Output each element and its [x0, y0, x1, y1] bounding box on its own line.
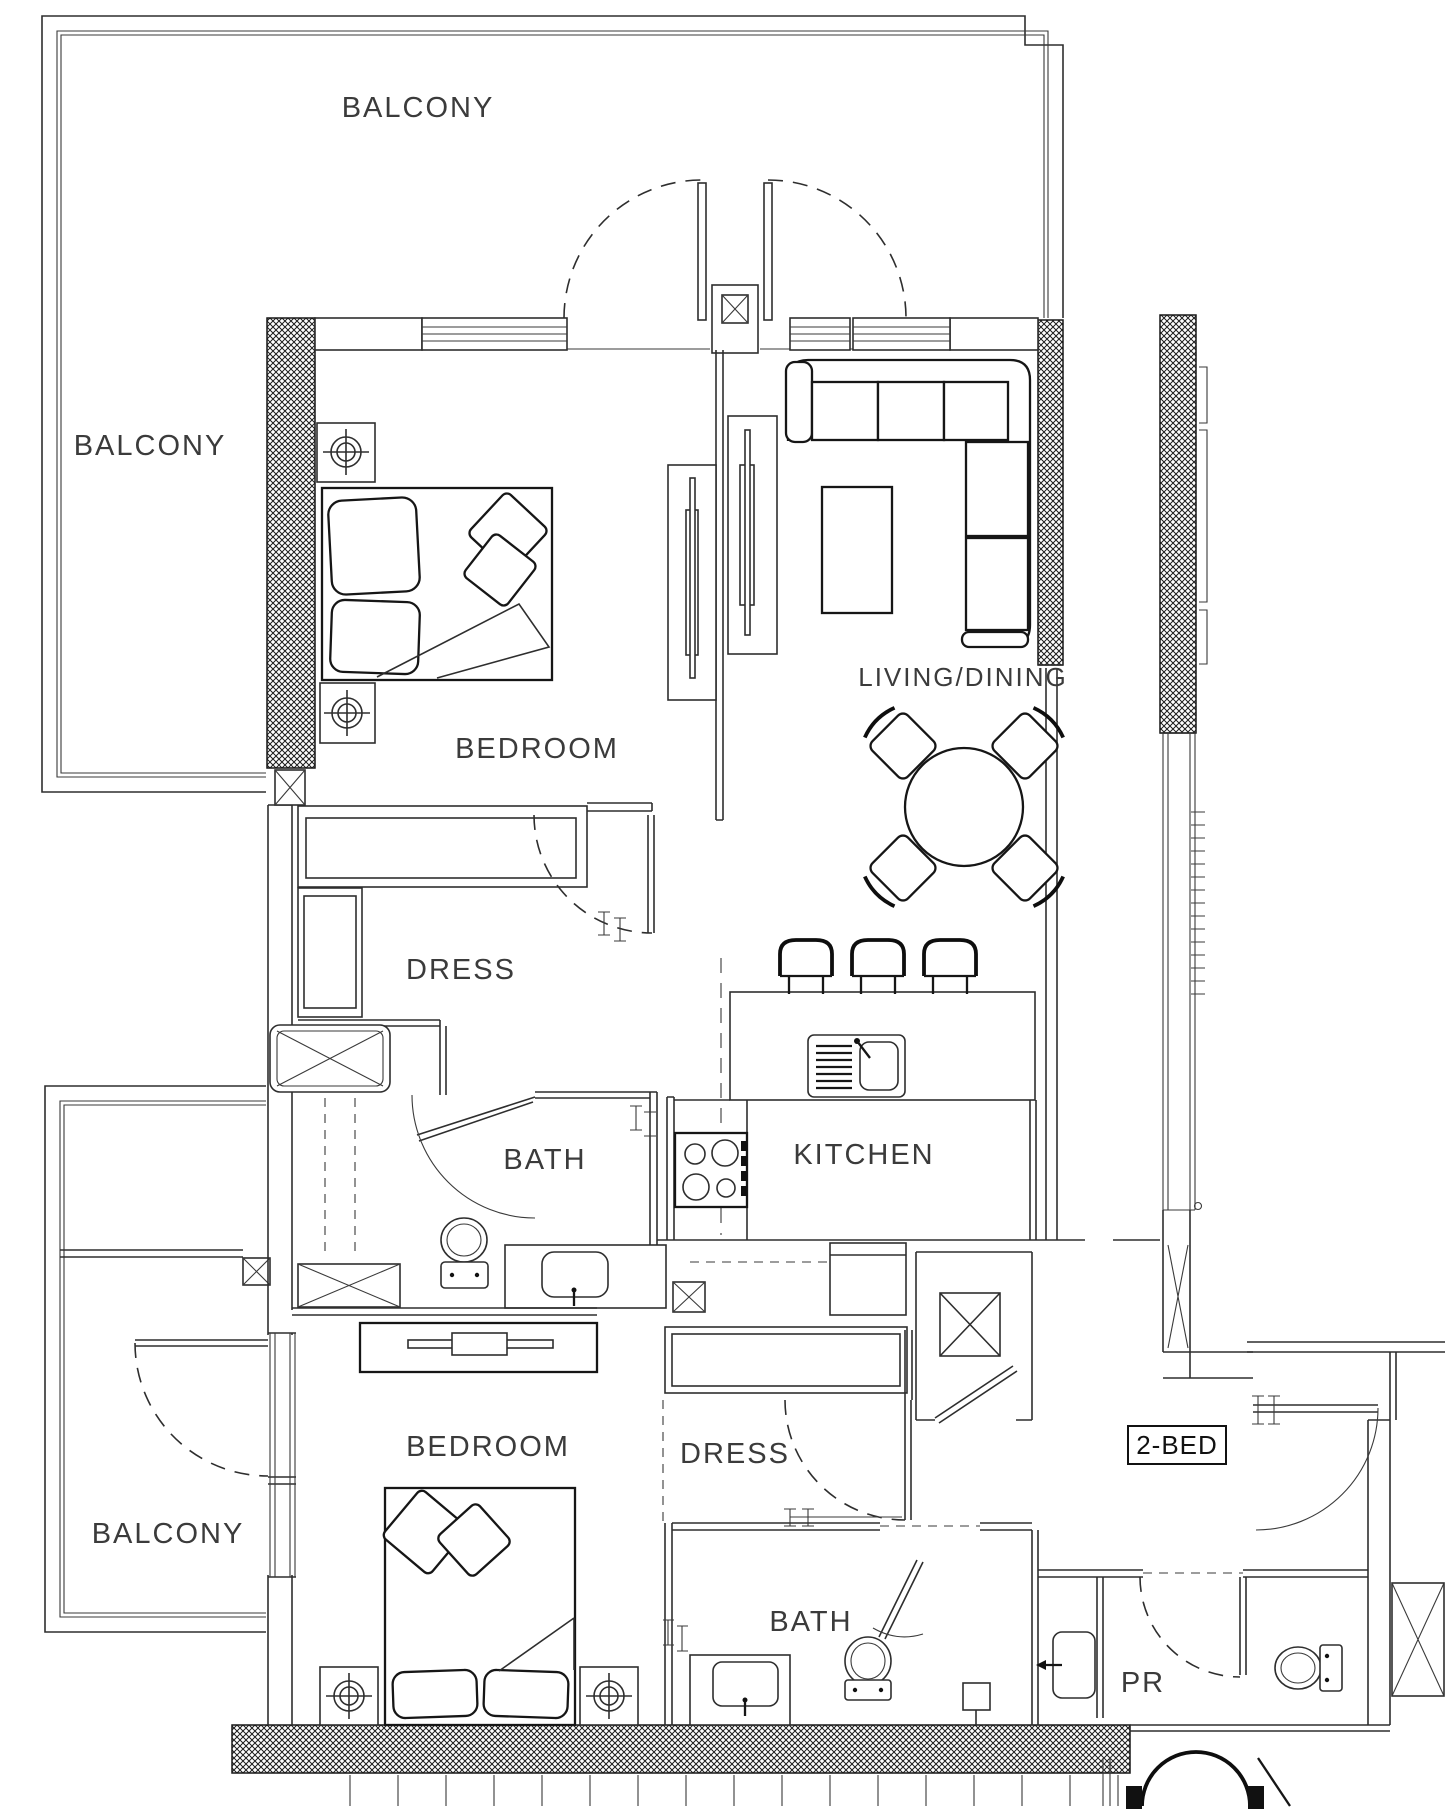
label-powder-room: PR [1121, 1667, 1165, 1699]
entry-door [1252, 1396, 1378, 1530]
pr-door [1140, 1577, 1246, 1677]
floor-plan: BALCONY BALCONY BEDROOM LIVING/DINING DR… [0, 0, 1445, 1809]
unit-type-label: 2-BED [1136, 1430, 1218, 1460]
toilet-2 [845, 1637, 891, 1700]
wardrobe-bedroom1 [668, 465, 716, 700]
bathtub [270, 1025, 390, 1092]
wardrobe-b [298, 888, 362, 1017]
toilet-3 [1275, 1645, 1342, 1691]
dining-table [859, 702, 1069, 912]
window-bedroom2 [266, 1333, 298, 1577]
bed-2 [381, 1488, 575, 1725]
nightstand-2 [320, 683, 375, 743]
entry [1103, 1210, 1445, 1809]
service-shaft [916, 1252, 1032, 1423]
window-living-1 [790, 318, 850, 350]
label-balcony-top: BALCONY [342, 92, 495, 124]
dresser-mirror [360, 1323, 597, 1372]
label-dress-1: DRESS [406, 954, 516, 986]
south-wall-ticks [350, 1775, 1118, 1806]
wardrobe-2 [665, 1327, 907, 1393]
cooktop [675, 1133, 747, 1207]
column-x-box-west [275, 770, 305, 805]
entry-column-x-marker [712, 285, 758, 353]
floor-plan-drawing: BALCONY BALCONY BEDROOM LIVING/DINING DR… [0, 0, 1445, 1809]
fridge [830, 1243, 906, 1315]
label-balcony-bottom: BALCONY [92, 1518, 245, 1550]
nightstand-4 [580, 1667, 638, 1725]
pr-sink [1036, 1632, 1095, 1698]
label-bath-2: BATH [769, 1606, 852, 1638]
label-living-dining: LIVING/DINING [858, 662, 1067, 692]
wall-south [232, 1725, 1130, 1773]
wall-bedroom1-west [267, 318, 315, 768]
balcony-bottom-outline [45, 1086, 270, 1632]
living-dining [786, 360, 1069, 1240]
laundry-below [1103, 1752, 1290, 1809]
balcony2-door [135, 1340, 268, 1476]
coffee-table [822, 487, 892, 613]
nightstand-1 [317, 423, 375, 482]
floor-drain-box [963, 1683, 990, 1725]
window-living-2 [853, 318, 950, 350]
balcony-duct-x-box [243, 1258, 270, 1285]
label-dress-2: DRESS [680, 1438, 790, 1470]
dress2 [663, 1327, 912, 1526]
label-bath-1: BATH [503, 1144, 586, 1176]
bath1 [270, 1020, 666, 1308]
duct-x-box-small [673, 1282, 705, 1312]
bar-stools [780, 940, 976, 994]
powder-room [1036, 1420, 1444, 1731]
bed-1 [322, 488, 552, 680]
wall-living-east [1038, 320, 1063, 665]
toilet-1 [441, 1218, 488, 1288]
washer-x-box [298, 1264, 400, 1307]
shaft-se-x-box [1392, 1583, 1444, 1696]
nightstand-3 [320, 1667, 378, 1725]
wall-far-east [1160, 315, 1196, 733]
tv-unit-living [728, 416, 777, 654]
partition-bedroom1-living [716, 350, 723, 820]
wardrobe-a [298, 806, 587, 887]
label-bedroom-2: BEDROOM [406, 1431, 570, 1463]
unit-type-badge: 2-BED [1128, 1426, 1226, 1464]
window-bedroom1 [422, 318, 567, 350]
dress2-door [784, 1400, 911, 1526]
hall [292, 1308, 597, 1372]
west-wall [135, 770, 305, 1725]
bedroom2 [320, 1488, 638, 1725]
kitchen-sink [808, 1035, 905, 1097]
vanity-sink-1 [505, 1245, 666, 1308]
label-bedroom-1: BEDROOM [455, 733, 619, 765]
label-balcony-left: BALCONY [74, 430, 227, 462]
label-kitchen: KITCHEN [793, 1139, 934, 1171]
vanity-sink-2 [690, 1655, 790, 1725]
north-wall-and-windows [315, 180, 1038, 353]
